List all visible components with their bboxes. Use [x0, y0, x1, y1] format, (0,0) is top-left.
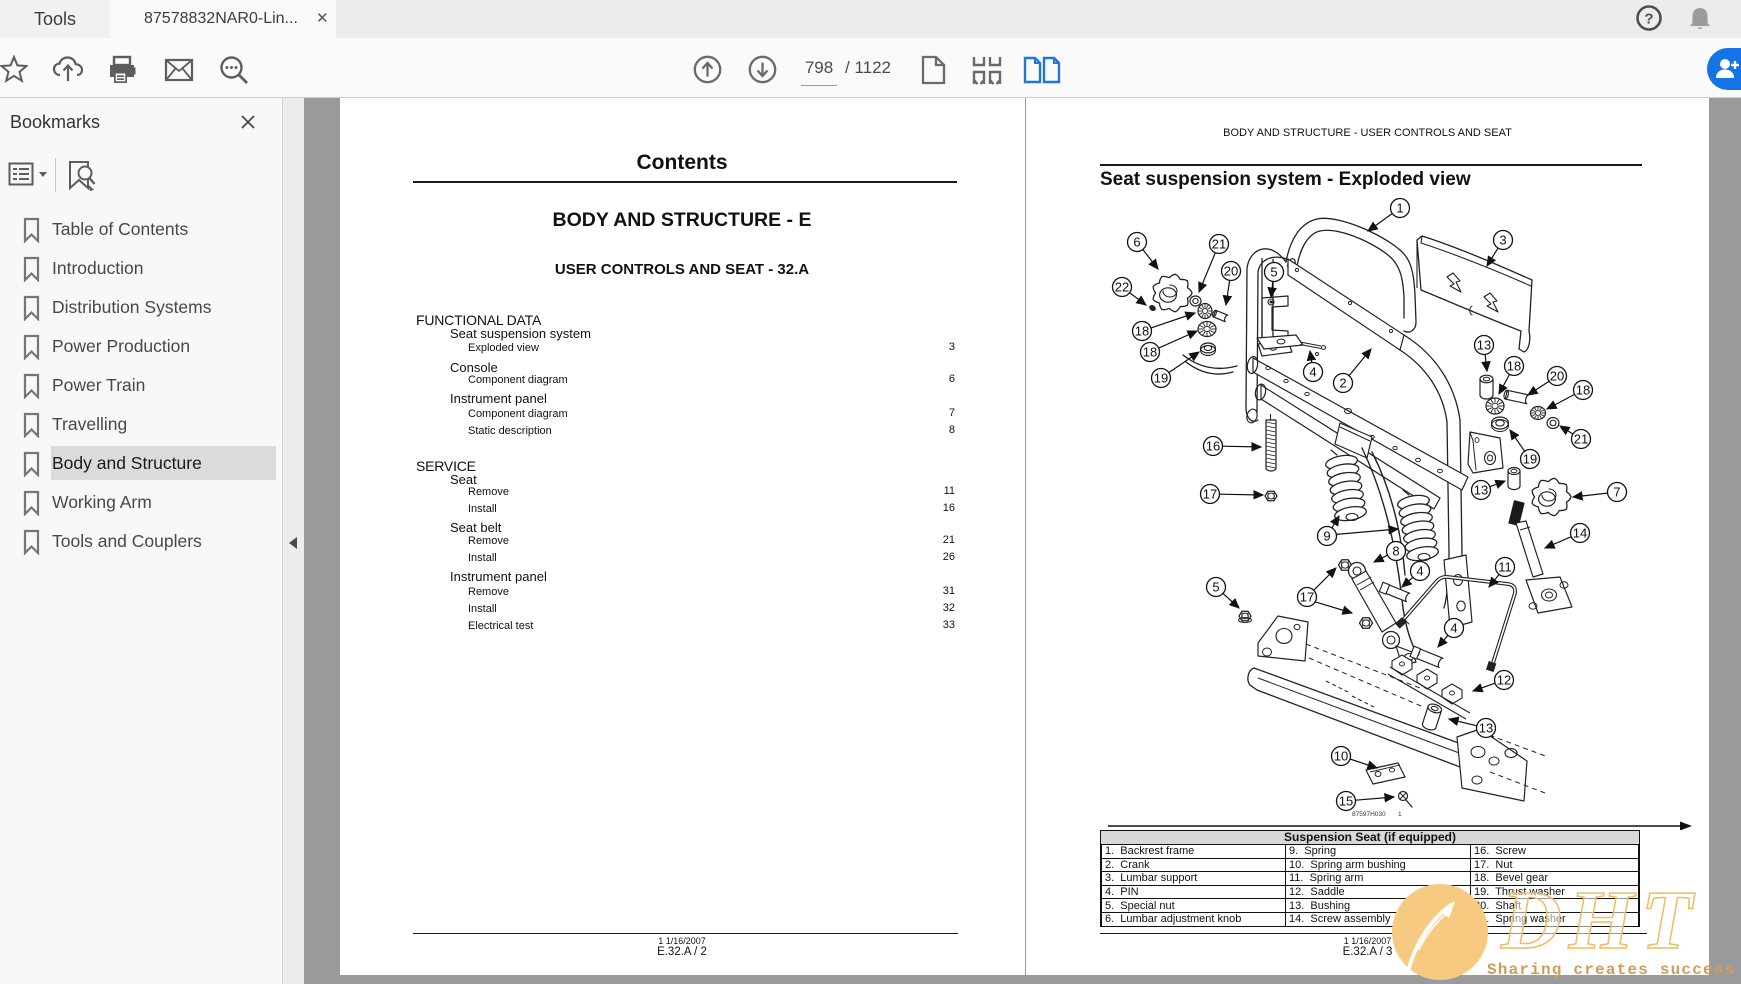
svg-text:13: 13 — [1474, 483, 1488, 498]
svg-text:87597H030: 87597H030 — [1352, 811, 1386, 818]
svg-text:19: 19 — [1154, 371, 1168, 386]
svg-text:8: 8 — [1392, 544, 1399, 559]
svg-text:13: 13 — [1477, 338, 1491, 353]
svg-text:18: 18 — [1135, 324, 1149, 339]
svg-text:1: 1 — [1398, 811, 1402, 818]
svg-text:18: 18 — [1507, 359, 1521, 374]
svg-text:20: 20 — [1550, 369, 1564, 384]
svg-text:?: ? — [1644, 11, 1653, 28]
svg-text:21: 21 — [1574, 432, 1588, 447]
svg-text:3: 3 — [1499, 233, 1506, 248]
svg-text:4: 4 — [1416, 564, 1423, 579]
svg-text:15: 15 — [1339, 794, 1353, 809]
svg-text:17: 17 — [1300, 590, 1314, 605]
svg-text:17: 17 — [1203, 487, 1217, 502]
svg-text:18: 18 — [1143, 345, 1157, 360]
svg-text:16: 16 — [1206, 439, 1220, 454]
svg-text:4: 4 — [1450, 621, 1457, 636]
svg-text:5: 5 — [1270, 265, 1277, 280]
svg-text:5: 5 — [1212, 580, 1219, 595]
svg-text:22: 22 — [1115, 280, 1129, 295]
svg-text:11: 11 — [1498, 560, 1512, 575]
svg-text:6: 6 — [1133, 235, 1140, 250]
svg-text:13: 13 — [1479, 721, 1493, 736]
svg-text:20: 20 — [1224, 264, 1238, 279]
svg-text:19: 19 — [1523, 452, 1537, 467]
svg-text:21: 21 — [1212, 237, 1226, 252]
svg-text:10: 10 — [1334, 749, 1348, 764]
svg-text:18: 18 — [1576, 383, 1590, 398]
svg-text:1: 1 — [1396, 201, 1403, 216]
svg-text:7: 7 — [1613, 485, 1620, 500]
svg-text:9: 9 — [1323, 529, 1330, 544]
svg-text:DHT: DHT — [1500, 874, 1699, 962]
svg-text:14: 14 — [1573, 526, 1587, 541]
svg-text:4: 4 — [1309, 365, 1316, 380]
svg-text:2: 2 — [1339, 376, 1346, 391]
svg-text:12: 12 — [1497, 673, 1511, 688]
